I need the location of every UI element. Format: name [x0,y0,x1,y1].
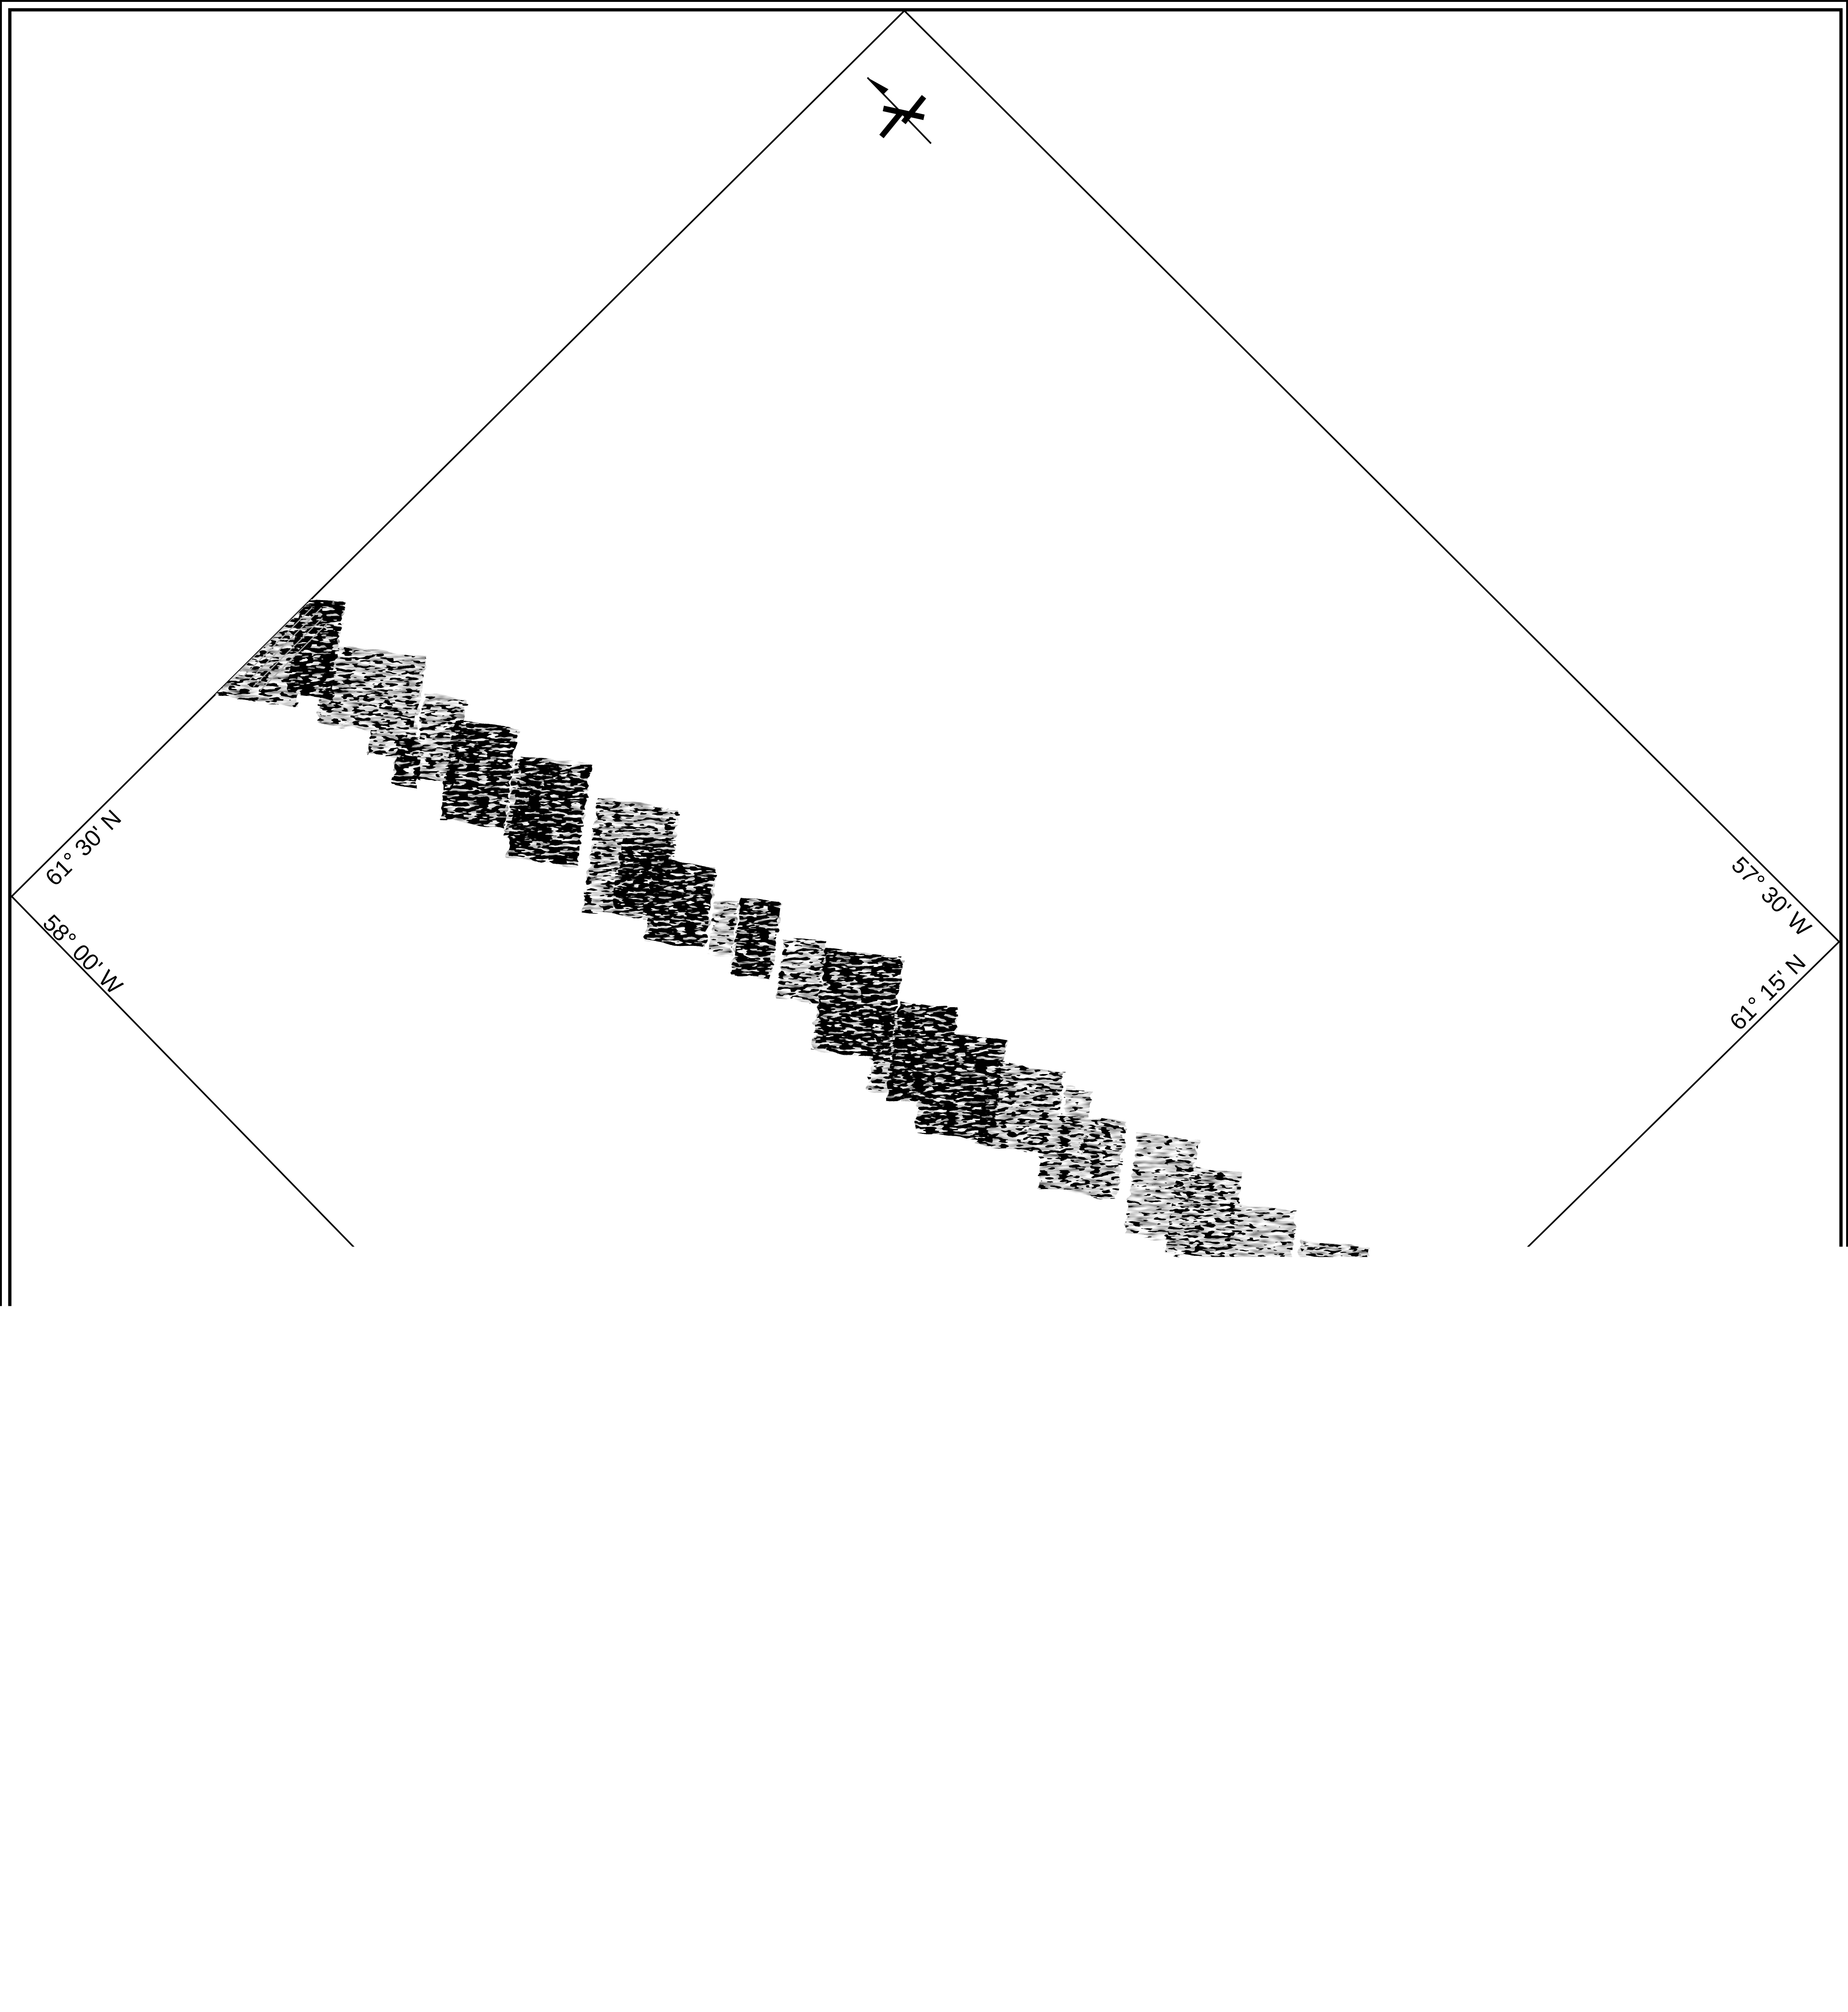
svg-text:10 NM: 10 NM [1033,1945,1106,1972]
svg-text:CANADA: CANADA [119,1941,176,1955]
svg-text:Ocean Mapping Group: Ocean Mapping Group [13,1859,280,1890]
svg-text:-5 dB: -5 dB [399,1851,463,1879]
svg-text:ArcticNet: ArcticNet [1634,1883,1776,1918]
svg-text:20 km: 20 km [1036,1883,1103,1911]
svg-text:-40 dB: -40 dB [398,1951,477,1979]
svg-text:University of New Brunswick: University of New Brunswick [65,1921,229,1935]
svg-text:OMG/ArcticNet Basemap: 61_30_N: OMG/ArcticNet Basemap: 61_30_N_58_00_W G… [468,1981,1352,2007]
